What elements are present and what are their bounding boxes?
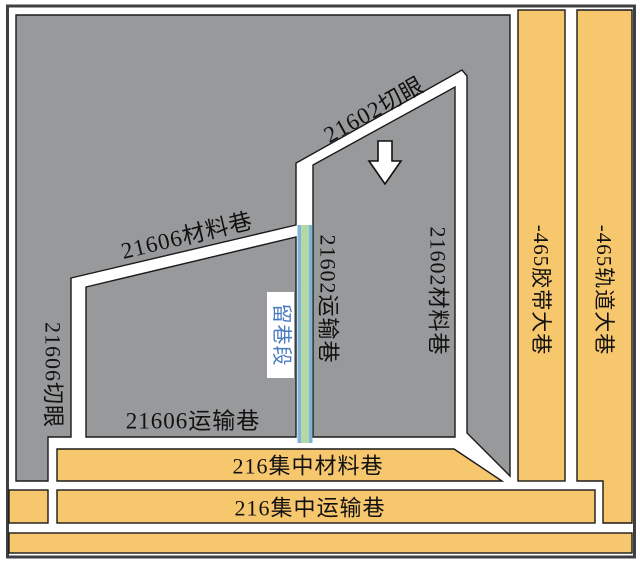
mine-panel-layout-diagram: 21602切眼 21606材料巷 21606切眼 21602运输巷 21602材… [0, 0, 640, 564]
label-21606-cut: 21606切眼 [41, 322, 66, 428]
label-465-track: -465轨道大巷 [592, 225, 616, 356]
label-216-central-transport: 216集中运输巷 [234, 496, 385, 521]
label-216-central-material: 216集中材料巷 [232, 454, 383, 479]
label-21602-transport: 21602运输巷 [316, 234, 341, 363]
label-21606-transport: 21606运输巷 [126, 409, 261, 434]
diagram-canvas: 21602切眼 21606材料巷 21606切眼 21602运输巷 21602材… [0, 0, 640, 564]
label-465-belt: -465胶带大巷 [529, 225, 553, 356]
bottom-main-roadway [9, 533, 632, 553]
label-21602-material: 21602材料巷 [426, 226, 451, 355]
retained-roadway-fill [301, 225, 309, 443]
label-retained-section: 留巷段 [270, 304, 293, 367]
roadway-stub-left [9, 490, 48, 523]
